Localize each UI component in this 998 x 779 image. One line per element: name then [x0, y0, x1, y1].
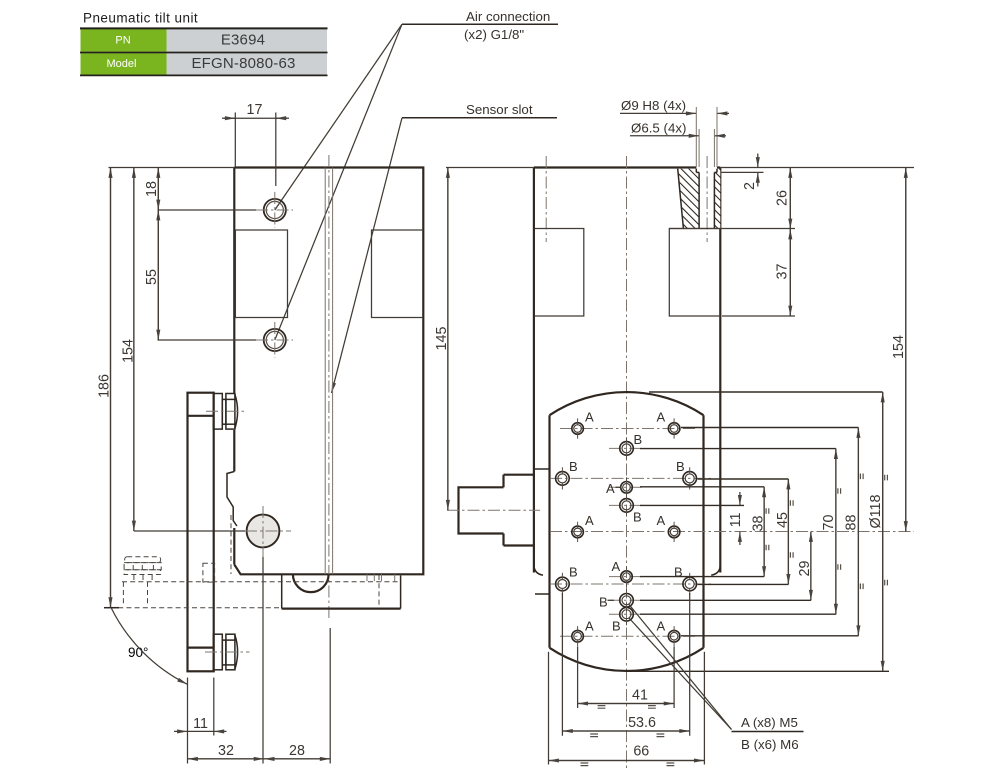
svg-text:B: B [612, 619, 621, 634]
svg-text:B: B [569, 459, 578, 474]
svg-text:2: 2 [742, 182, 758, 190]
svg-text:(x2) G1/8": (x2) G1/8" [464, 27, 524, 42]
svg-text:A (x8) M5: A (x8) M5 [741, 715, 798, 730]
svg-text:26: 26 [775, 190, 791, 206]
svg-text:55: 55 [144, 269, 160, 285]
svg-text:53.6: 53.6 [628, 715, 656, 731]
svg-text:A: A [612, 559, 621, 574]
svg-text:A: A [657, 410, 666, 425]
svg-text:41: 41 [632, 688, 648, 704]
svg-text:Ø6.5 (4x): Ø6.5 (4x) [631, 121, 686, 136]
svg-text:EFGN-8080-63: EFGN-8080-63 [191, 55, 295, 72]
svg-text:A: A [606, 481, 615, 496]
svg-text:A: A [657, 513, 666, 528]
svg-text:B: B [676, 459, 685, 474]
svg-text:A: A [657, 618, 666, 633]
svg-text:Ø118: Ø118 [868, 494, 884, 528]
svg-text:Sensor slot: Sensor slot [466, 102, 533, 117]
svg-text:11: 11 [193, 716, 208, 732]
svg-text:88: 88 [843, 515, 859, 531]
svg-text:Air connection: Air connection [466, 9, 550, 24]
svg-text:A: A [585, 410, 594, 425]
svg-text:11: 11 [728, 513, 744, 528]
svg-text:A: A [585, 513, 594, 528]
svg-text:28: 28 [289, 743, 305, 759]
svg-text:B (x6) M6: B (x6) M6 [741, 737, 799, 752]
svg-text:Pneumatic tilt unit: Pneumatic tilt unit [83, 11, 198, 26]
svg-text:B: B [569, 565, 578, 580]
svg-text:Ø9 H8 (4x): Ø9 H8 (4x) [621, 98, 686, 113]
svg-text:32: 32 [218, 743, 234, 759]
svg-text:PN: PN [115, 35, 130, 47]
svg-text:154: 154 [891, 335, 907, 359]
svg-text:B: B [599, 594, 608, 609]
svg-text:B: B [633, 510, 642, 525]
svg-text:Model: Model [107, 58, 137, 70]
svg-text:A: A [585, 618, 594, 633]
svg-text:70: 70 [821, 515, 837, 531]
svg-text:17: 17 [247, 102, 263, 118]
svg-text:B: B [634, 432, 643, 447]
svg-text:66: 66 [633, 744, 649, 760]
svg-text:18: 18 [144, 181, 160, 197]
svg-text:37: 37 [775, 264, 791, 280]
svg-text:E3694: E3694 [221, 32, 265, 49]
